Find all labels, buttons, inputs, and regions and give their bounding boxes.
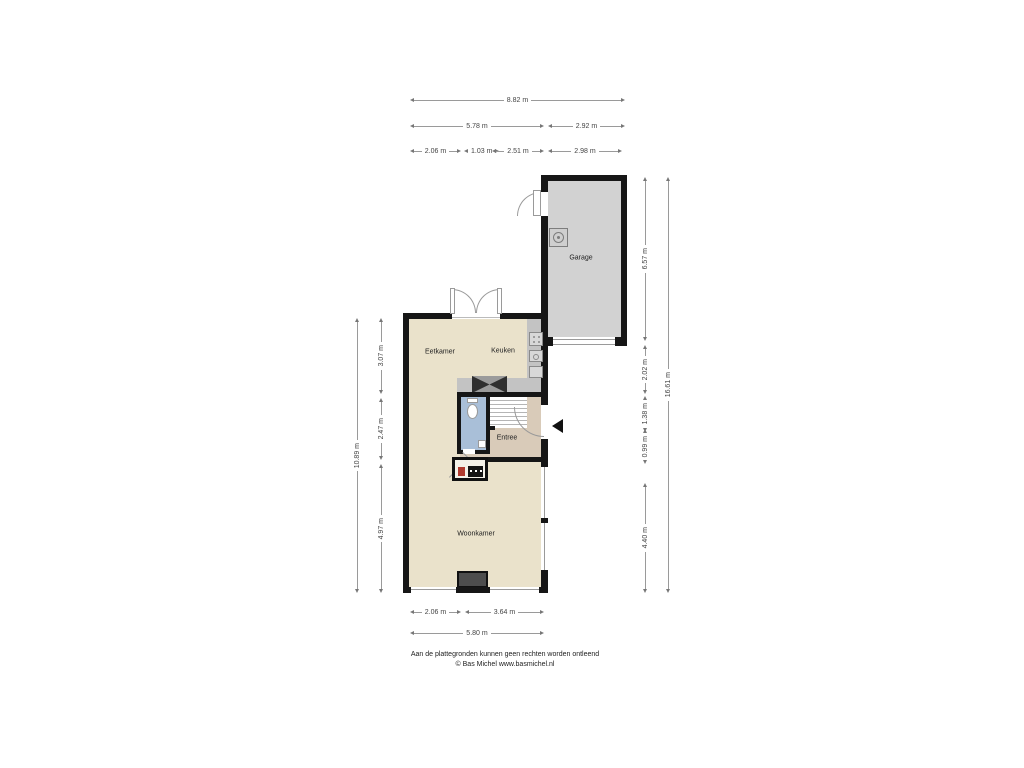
dim-top-c: 2.51 m [492, 147, 544, 155]
chimney-icon [472, 376, 507, 393]
garden-doors-threshold [452, 317, 500, 318]
garage-wall-top [541, 175, 627, 181]
garage-door-line1 [553, 339, 615, 340]
window-bottom-2 [490, 587, 539, 593]
dim-top-a: 2.06 m [410, 147, 461, 155]
dim-label: 4.40 m [642, 524, 649, 551]
dim-left-a: 3.07 m [377, 318, 385, 394]
washing-machine-drum [553, 232, 564, 243]
dim-label: 2.06 m [422, 609, 449, 616]
footer-line2: © Bas Michel www.basmichel.nl [355, 660, 655, 670]
dim-top-garage: 2.92 m [548, 122, 625, 130]
garage-side-door-opening [541, 192, 548, 216]
garden-door-right-leaf [497, 288, 502, 314]
dim-bottom-b: 3.64 m [465, 608, 544, 616]
window-bottom-2-frame [490, 589, 539, 590]
dim-label: 4.97 m [378, 515, 385, 542]
dim-left-b: 2.47 m [377, 398, 385, 460]
toilet-icon [467, 404, 478, 419]
window-bottom-1-frame [411, 589, 456, 590]
dim-right-e: 4.40 m [641, 483, 649, 593]
fireplace-icon [457, 571, 488, 588]
dim-top-total: 8.82 m [410, 96, 625, 104]
garage-door-line2 [553, 344, 615, 345]
garden-doors-opening [452, 313, 500, 319]
footer-line1: Aan de plattegronden kunnen geen rechten… [355, 650, 655, 660]
dim-label: 2.06 m [422, 148, 449, 155]
dim-label: 2.47 m [378, 415, 385, 442]
floorplan-canvas: 8.82 m 5.78 m 2.92 m 2.06 m 1.03 m 2.51 … [0, 0, 1024, 768]
dim-label: 2.98 m [571, 148, 598, 155]
dim-right-c: 1.38 m [641, 398, 649, 430]
sink-basin [533, 354, 539, 360]
meter-cupboard-interior [455, 460, 485, 478]
room-label-garage: Garage [569, 255, 592, 262]
entrance-arrow-icon [552, 419, 563, 433]
dim-bottom-a: 2.06 m [410, 608, 461, 616]
fuse-box-icon [458, 467, 465, 476]
dim-right-a: 6.57 m [641, 177, 649, 341]
washing-machine-dot [557, 236, 560, 239]
dim-label: 2.02 m [642, 356, 649, 383]
dim-top-d: 2.98 m [548, 147, 622, 155]
window-right-1-frame [544, 467, 545, 518]
meter-cupboard [452, 457, 488, 481]
dim-label: 10.89 m [354, 440, 361, 471]
dim-label: 5.80 m [463, 630, 490, 637]
stove-burners [533, 336, 535, 338]
stove-icon [529, 332, 543, 346]
dim-label: 3.64 m [491, 609, 518, 616]
meter-dots [470, 470, 472, 472]
dim-top-b: 1.03 m [464, 147, 489, 155]
washing-machine-icon [549, 228, 568, 247]
dim-label: 2.92 m [573, 123, 600, 130]
room-label-entree: Entree [497, 435, 518, 442]
toilet-tank-icon [467, 398, 478, 403]
dim-label: 3.07 m [378, 342, 385, 369]
window-right-2-frame [544, 523, 545, 570]
counter-unit-icon [529, 366, 543, 378]
wall-left [403, 313, 409, 593]
dim-label: 16.61 m [665, 369, 672, 400]
dim-right-total: 16.61 m [664, 177, 672, 593]
dim-label: 1.38 m [642, 400, 649, 427]
garden-door-left-swing [452, 289, 476, 313]
garage-side-door-leaf [533, 190, 541, 216]
footer-disclaimer: Aan de plattegronden kunnen geen rechten… [355, 650, 655, 670]
garden-door-left-leaf [450, 288, 455, 314]
wall-entree-woonkamer [488, 457, 544, 462]
sink-icon [529, 350, 543, 362]
room-label-keuken: Keuken [491, 348, 515, 355]
wall-kitchen-entree [457, 392, 544, 397]
window-bottom-1 [411, 587, 456, 593]
dim-right-b: 2.02 m [641, 345, 649, 394]
dim-bottom-total: 5.80 m [410, 629, 544, 637]
dim-left-c: 4.97 m [377, 464, 385, 593]
toilet-sink-icon [478, 440, 486, 448]
dim-left-total: 10.89 m [353, 318, 361, 593]
garage-door-post-right [615, 337, 627, 346]
dim-label: 5.78 m [463, 123, 490, 130]
dim-label: 0.99 m [642, 433, 649, 460]
room-label-eetkamer: Eetkamer [425, 349, 455, 356]
room-label-woonkamer: Woonkamer [457, 531, 495, 538]
dim-top-house: 5.78 m [410, 122, 544, 130]
meter-panel-icon [468, 466, 483, 477]
dim-label: 8.82 m [504, 97, 531, 104]
garage-wall-right [621, 175, 627, 346]
dim-right-d: 0.99 m [641, 434, 649, 459]
dim-label: 6.57 m [642, 245, 649, 272]
dim-label: 2.51 m [504, 148, 531, 155]
